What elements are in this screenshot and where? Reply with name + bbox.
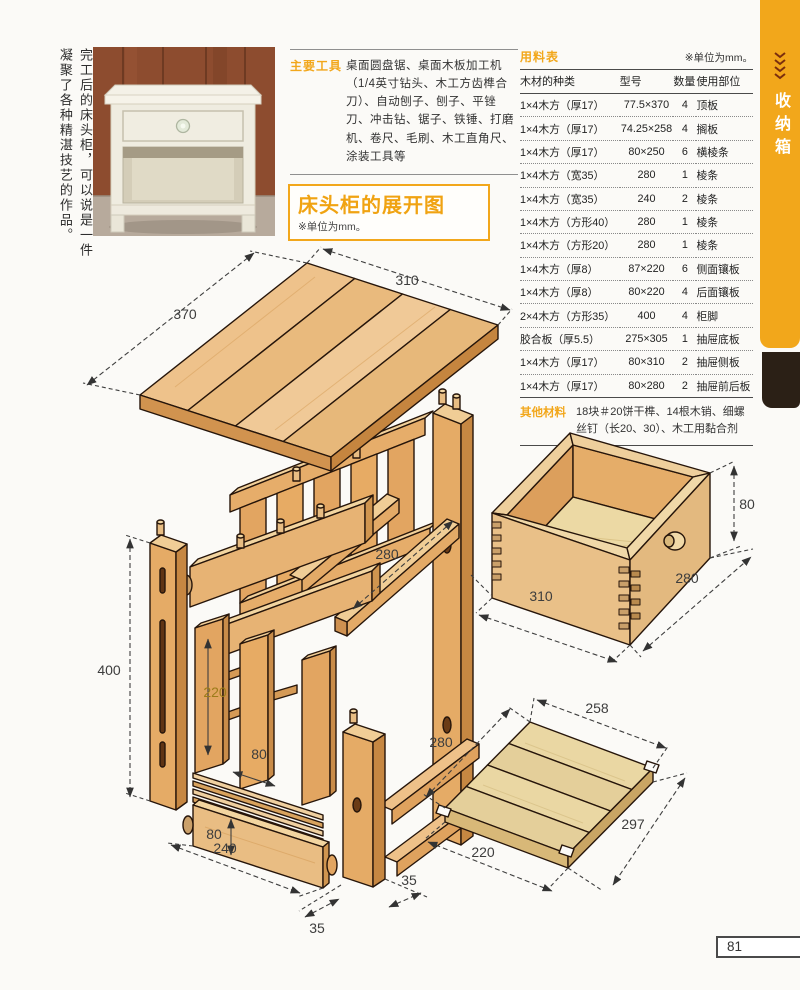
table-row: 1×4木方（宽35） 240 2 棱条 — [520, 187, 753, 210]
col-header-type: 木材的种类 — [520, 70, 620, 94]
diagram-title-box: 床头柜的展开图 ※单位为mm。 — [288, 184, 490, 241]
book-page: 完工后的床头柜，可以说是一件凝聚了各种精湛技艺的作品。 主要工具 — [0, 0, 800, 990]
dim-label-280-drawer: 280 — [675, 570, 699, 586]
drawer-illustration — [492, 433, 710, 645]
diagram-title: 床头柜的展开图 — [298, 189, 480, 218]
dim-label-400: 400 — [97, 662, 121, 678]
page-number: 81 — [716, 936, 800, 958]
nightstand-photo — [93, 47, 275, 236]
cell-type: 1×4木方（宽35） — [520, 187, 620, 210]
section-tab-black — [762, 352, 800, 408]
cell-model: 240 — [620, 187, 674, 210]
side-slats-illustration — [195, 614, 336, 805]
cell-qty: 1 — [673, 210, 696, 233]
dim-label-370: 370 — [173, 306, 197, 322]
cell-qty: 4 — [673, 117, 696, 140]
cell-qty: 4 — [673, 94, 696, 117]
cell-type: 1×4木方（厚17） — [520, 94, 620, 117]
cell-type: 1×4木方（厚17） — [520, 117, 620, 140]
dim-label-240: 240 — [213, 840, 237, 856]
table-row: 1×4木方（厚17） 80×250 6 横棱条 — [520, 140, 753, 163]
cell-type: 1×4木方（厚17） — [520, 140, 620, 163]
chapter-tab: 收纳箱 — [760, 0, 800, 348]
tools-label: 主要工具 — [290, 57, 346, 166]
cell-use: 横棱条 — [696, 140, 753, 163]
cell-model: 77.5×370 — [620, 94, 674, 117]
cell-model: 280 — [620, 210, 674, 233]
chapter-tab-label: 收纳箱 — [768, 92, 792, 161]
cell-model: 80×250 — [620, 140, 674, 163]
cell-type: 1×4木方（宽35） — [520, 164, 620, 187]
materials-header: 用料表 ※单位为mm。 — [520, 48, 753, 65]
col-header-model: 型号 — [620, 70, 674, 94]
dim-label-35-left: 35 — [309, 920, 325, 936]
col-header-use: 使用部位 — [696, 70, 753, 94]
cell-qty: 6 — [673, 140, 696, 163]
diagram-unit-note: ※单位为mm。 — [298, 219, 480, 234]
cell-qty: 1 — [673, 164, 696, 187]
materials-unit-note: ※单位为mm。 — [685, 50, 753, 65]
cell-qty: 2 — [673, 187, 696, 210]
cell-use: 棱条 — [696, 210, 753, 233]
front-leg-illustration — [343, 709, 385, 887]
dim-label-310-drawer: 310 — [529, 588, 553, 604]
cell-use: 棱条 — [696, 164, 753, 187]
dim-label-80-drawer: 80 — [739, 496, 755, 512]
dim-label-220-panel: 220 — [203, 684, 227, 700]
table-row: 1×4木方（宽35） 280 1 棱条 — [520, 164, 753, 187]
dim-label-80-panel: 80 — [251, 746, 267, 762]
drawer-knob-icon — [664, 532, 685, 550]
cell-model: 280 — [620, 164, 674, 187]
col-header-qty: 数量 — [673, 70, 696, 94]
table-row: 1×4木方（厚17） 77.5×370 4 顶板 — [520, 94, 753, 117]
exploded-diagram: 370 310 280 400 220 80 80 240 35 35 80 2… — [35, 245, 765, 955]
table-row: 1×4木方（厚17） 74.25×258 4 搁板 — [520, 117, 753, 140]
left-leg-illustration — [150, 520, 187, 810]
dim-label-258-shelf: 258 — [585, 700, 609, 716]
dim-label-280-shelf: 280 — [429, 734, 453, 750]
dim-label-297-shelf: 297 — [621, 816, 645, 832]
chevron-marks-icon — [774, 52, 786, 82]
cell-model: 74.25×258 — [620, 117, 674, 140]
tools-text: 桌面圆盘锯、桌面木板加工机（1/4英寸钻头、木工方齿榫合刀）、自动刨子、刨子、平… — [346, 57, 518, 166]
dim-label-310-top: 310 — [395, 272, 419, 288]
dim-label-35-right: 35 — [401, 872, 417, 888]
white-nightstand — [105, 85, 261, 232]
materials-label: 用料表 — [520, 48, 559, 65]
cell-use: 顶板 — [696, 94, 753, 117]
cell-type: 1×4木方（方形40） — [520, 210, 620, 233]
cell-use: 搁板 — [696, 117, 753, 140]
photo-caption: 完工后的床头柜，可以说是一件凝聚了各种精湛技艺的作品。 — [55, 48, 95, 266]
table-row: 1×4木方（方形40） 280 1 棱条 — [520, 210, 753, 233]
dim-label-220-shelf: 220 — [471, 844, 495, 860]
tools-section: 主要工具 桌面圆盘锯、桌面木板加工机（1/4英寸钻头、木工方齿榫合刀）、自动刨子… — [290, 49, 518, 175]
cell-use: 棱条 — [696, 187, 753, 210]
dim-label-280-rail: 280 — [375, 546, 399, 562]
table-header-row: 木材的种类 型号 数量 使用部位 — [520, 70, 753, 94]
